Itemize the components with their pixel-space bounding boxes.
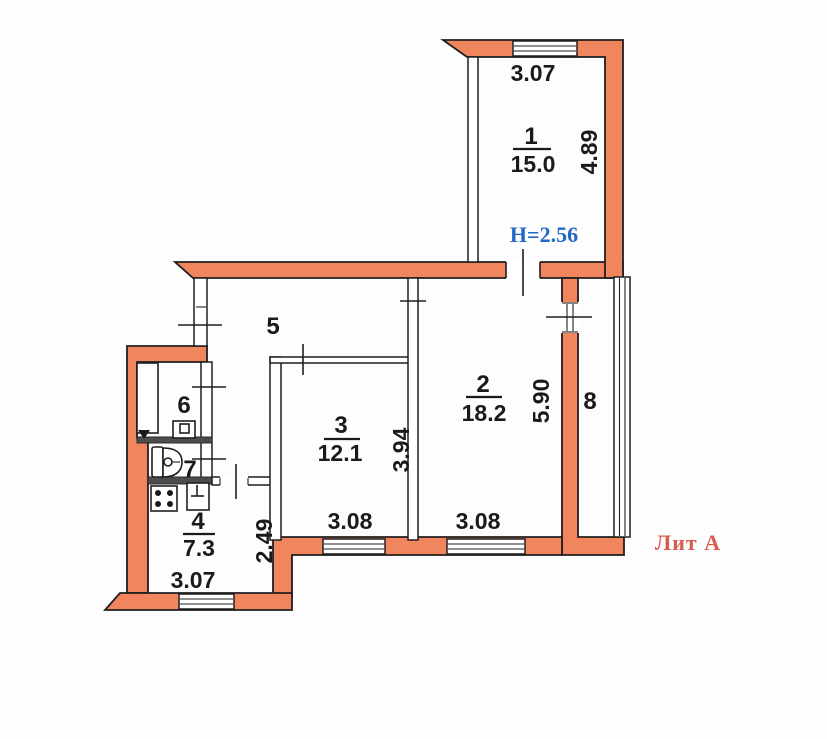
wall-room3-left [270, 357, 281, 540]
litera-label: Лит А [655, 530, 721, 555]
toilet-icon [152, 447, 163, 477]
dim-room2-depth: 5.90 [528, 379, 554, 424]
room2-number: 2 [476, 371, 489, 398]
stove-burner [167, 501, 173, 507]
dim-room3-depth: 3.94 [388, 427, 414, 472]
window-room2 [447, 539, 525, 554]
wall-rooms67-right [201, 362, 212, 478]
stove-burner [155, 501, 161, 507]
window-room1 [513, 41, 577, 56]
dim-room1-depth: 4.89 [576, 130, 602, 175]
room1-number: 1 [524, 123, 537, 150]
stove-burner [167, 490, 173, 496]
room-labels: 1 15.0 2 18.2 3 12.1 4 7.3 5 6 7 8 [177, 123, 596, 561]
wardrobe-door [137, 363, 158, 433]
room2-area: 18.2 [462, 400, 507, 426]
room5-number: 5 [266, 313, 279, 340]
room4-number: 4 [191, 508, 205, 535]
stove-burner [155, 490, 161, 496]
dim-room4-depth: 2.49 [251, 519, 277, 564]
dim-room3-width: 3.08 [328, 508, 373, 534]
room3-number: 3 [334, 412, 347, 439]
ceiling-height-label: H=2.56 [510, 222, 578, 247]
wall-main-top [175, 262, 623, 278]
dim-room1-width: 3.07 [511, 60, 556, 86]
door-kitchen [220, 476, 248, 486]
stove-icon [151, 486, 177, 511]
dim-room2-width: 3.08 [456, 508, 501, 534]
wall-room1-left [468, 57, 478, 262]
room3-area: 12.1 [318, 440, 363, 466]
floor-plan-page: 1 15.0 2 18.2 3 12.1 4 7.3 5 6 7 8 3.07 … [0, 0, 827, 739]
room6-number: 6 [177, 392, 190, 419]
window-kitchen [179, 594, 234, 609]
room1-area: 15.0 [511, 151, 556, 177]
toilet-drain [164, 458, 172, 466]
wall-room2-room3 [408, 278, 418, 540]
balcony-glazing-band [614, 277, 630, 537]
window-room3 [323, 539, 385, 554]
dim-room4-width: 3.07 [171, 567, 216, 593]
room7-number: 7 [183, 456, 196, 483]
wall-entrance [194, 278, 207, 346]
fixture-icon-room6-inner [180, 424, 189, 433]
floor-plan-drawing: 1 15.0 2 18.2 3 12.1 4 7.3 5 6 7 8 3.07 … [0, 0, 827, 739]
wall-room3-top [270, 357, 410, 363]
room8-number: 8 [583, 388, 596, 415]
room4-area: 7.3 [183, 535, 215, 561]
